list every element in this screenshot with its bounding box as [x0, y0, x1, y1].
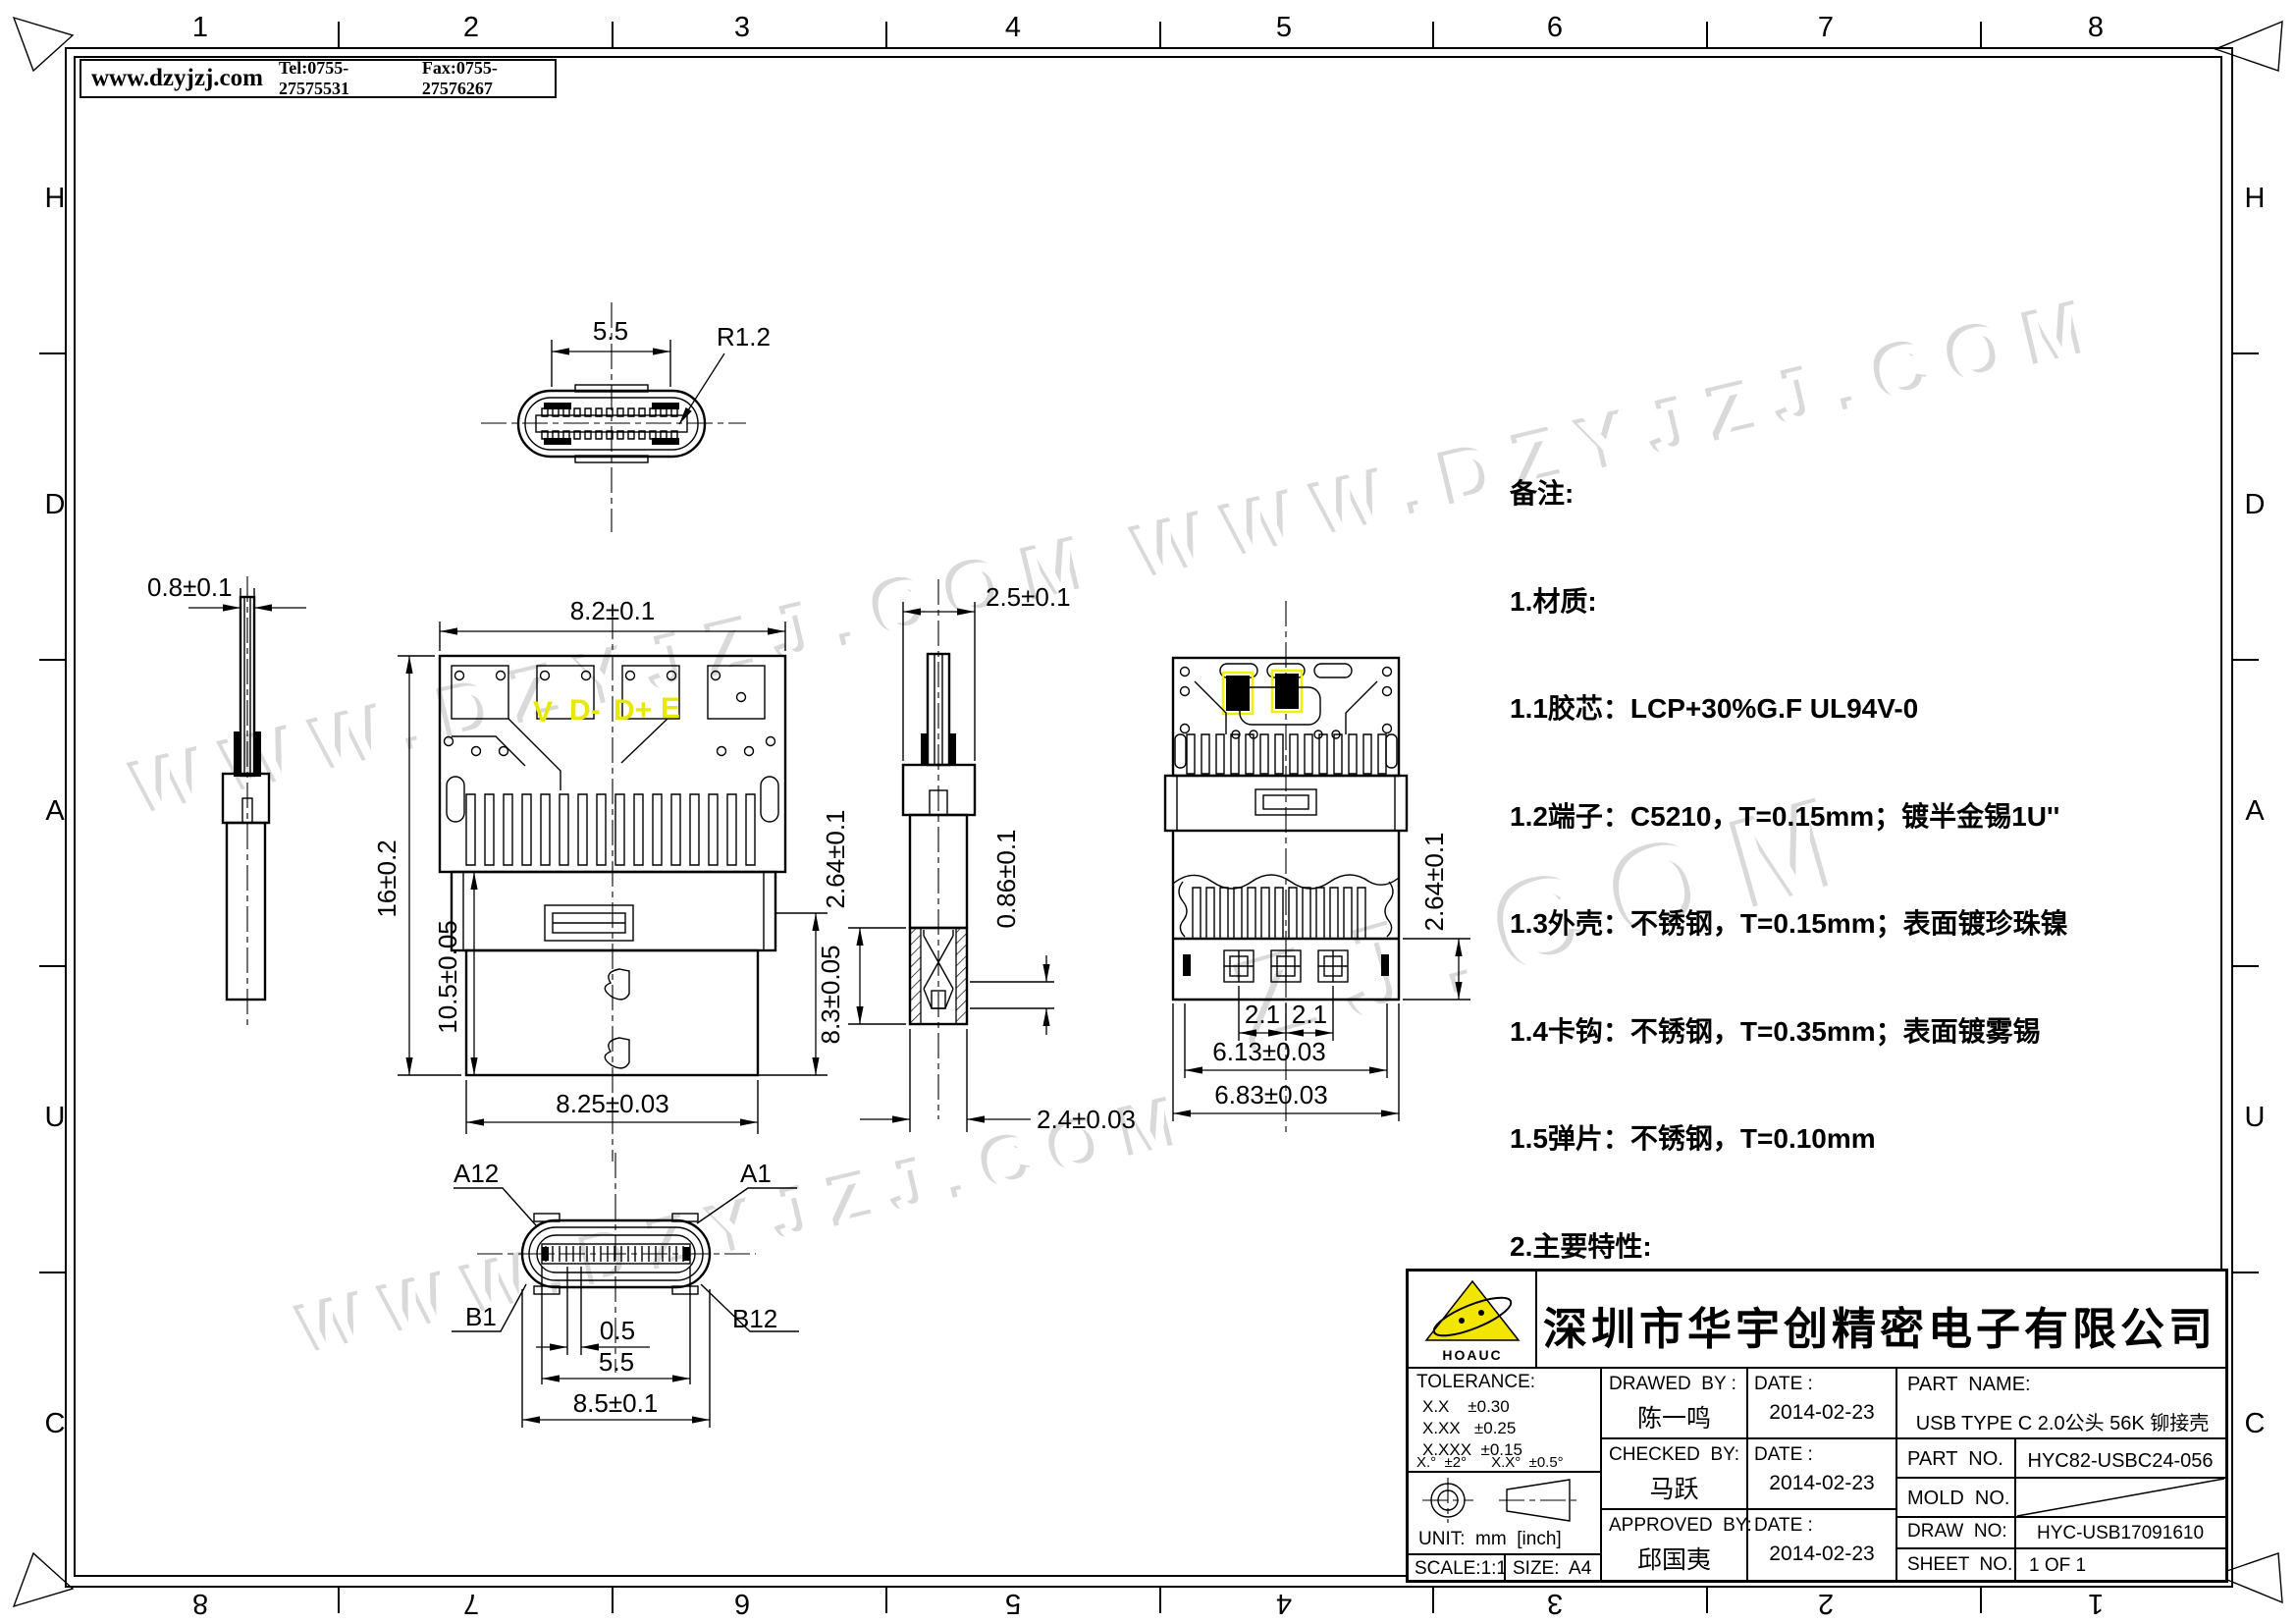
dim-shell-height: 10.5±0.05 — [433, 920, 462, 1033]
logo-text: HOAUC — [1442, 1347, 1502, 1363]
view-side-section: 2.5±0.1 2.64±0.1 0.86±0.1 2.4±0.03 — [813, 565, 1186, 1154]
dim-outer-width: 6.83±0.03 — [1214, 1080, 1327, 1110]
pad-label-dminus: D- — [569, 694, 601, 727]
dim-tongue-width: 5.5 — [599, 1347, 634, 1377]
pad-label-e: E — [661, 692, 680, 725]
mating-face-callouts: A12 A1 B1 B12 — [452, 1159, 799, 1333]
dim-inner-width: 6.13±0.03 — [1212, 1037, 1325, 1066]
scale-label: SCALE:1:1 — [1415, 1558, 1507, 1580]
website-box: www.dzyjzj.com Tel:0755-27575531 Fax:075… — [80, 59, 557, 98]
fax-number: Fax:0755-27576267 — [422, 58, 555, 99]
website-url: www.dzyjzj.com — [91, 65, 263, 92]
dim-pitch-right: 2.1 — [1292, 1000, 1327, 1029]
view-side-pin: 0.8±0.1 — [137, 565, 324, 1036]
dim-bottom-width: 2.4±0.03 — [1037, 1105, 1136, 1134]
title-block: HOAUC 深圳市华宇创精密电子有限公司 TOLERANCE: X.X ±0.3… — [1406, 1269, 2228, 1583]
view-rear: 2.64±0.1 2.1 2.1 6.13±0.03 6.83±0.03 — [1161, 587, 1574, 1142]
front-main-dimensions: 8.2±0.1 16±0.2 10.5±0.05 8.3±0.05 8.25±0… — [372, 596, 845, 1134]
pin-label-b1: B1 — [465, 1302, 497, 1331]
dim-radius: R1.2 — [717, 322, 771, 352]
drawn-date-label: DATE : — [1754, 1374, 1813, 1395]
side-section-dimensions: 2.5±0.1 2.64±0.1 0.86±0.1 2.4±0.03 — [821, 582, 1136, 1134]
approved-date: 2014-02-23 — [1747, 1543, 1896, 1566]
dim-right-height: 2.64±0.1 — [1419, 832, 1449, 931]
draw-no-value: HYC-USB17091610 — [2015, 1523, 2225, 1544]
dim-total-height: 16±0.2 — [372, 839, 401, 917]
size-label: SIZE: A4 — [1513, 1558, 1591, 1580]
projection-symbols — [1416, 1476, 1593, 1525]
pin-label-a12: A12 — [454, 1159, 499, 1188]
note-line: 1.4卡钩：不锈钢，T=0.35mm；表面镀雾锡 — [1510, 1014, 2068, 1051]
drawing-sheet: WWW.DZYJZJ.COM WWW.DZYJZJ.COM WWW.DZYJZJ… — [0, 0, 2296, 1624]
dim-left-height: 2.64±0.1 — [821, 809, 850, 908]
tolerance-row: X.X ±0.30 — [1422, 1397, 1510, 1417]
checked-date: 2014-02-23 — [1747, 1472, 1896, 1495]
note-line: 2.主要特性: — [1510, 1229, 2068, 1266]
checked-by-label: CHECKED BY: — [1609, 1444, 1739, 1466]
pad-label-dplus: D+ — [614, 694, 652, 727]
side-section-geometry — [903, 579, 975, 1119]
checked-by-name: 马跃 — [1601, 1470, 1747, 1505]
company-name: 深圳市华宇创精密电子有限公司 — [1536, 1293, 2223, 1357]
checked-date-label: DATE : — [1754, 1444, 1813, 1466]
note-line: 1.2端子：C5210，T=0.15mm；镀半金锡1U'' — [1510, 799, 2068, 836]
dim-pin-offset: 0.5 — [600, 1316, 635, 1345]
view-mating-face: A12 A1 B1 B12 0.5 5.5 8.5±0.1 — [440, 1137, 862, 1471]
front-main-pad-labels: V D- D+ E — [533, 692, 680, 729]
dim-top-width: 8.2±0.1 — [570, 596, 656, 625]
company-logo: HOAUC — [1420, 1275, 1524, 1366]
part-no-label: PART NO. — [1907, 1448, 2003, 1471]
view-front-profile: 5.5 R1.2 — [471, 285, 864, 550]
pad-label-v: V — [533, 696, 553, 729]
part-no-value: HYC82-USBC24-056 — [2015, 1450, 2225, 1473]
rear-dimensions: 2.64±0.1 2.1 2.1 6.13±0.03 6.83±0.03 — [1173, 832, 1470, 1121]
draw-no-label: DRAW NO: — [1907, 1521, 2007, 1543]
drawn-by-name: 陈一鸣 — [1601, 1399, 1747, 1435]
tolerance-row: X.XX ±0.25 — [1422, 1419, 1516, 1438]
phone-number: Tel:0755-27575531 — [279, 58, 406, 99]
dim-inner-height: 0.86±0.1 — [991, 829, 1021, 928]
side-pin-dimensions: 0.8±0.1 — [147, 572, 306, 616]
note-line: 备注: — [1510, 476, 2068, 513]
pin-label-b12: B12 — [732, 1304, 777, 1333]
dim-pitch-left: 2.1 — [1245, 1000, 1280, 1029]
note-line: 1.5弹片：不锈钢，T=0.10mm — [1510, 1121, 2068, 1158]
part-name-value: USB TYPE C 2.0公头 56K 铆接壳 — [1904, 1407, 2220, 1435]
part-name-label: PART NAME: — [1907, 1374, 2031, 1396]
approved-by-name: 邱国夷 — [1601, 1541, 1747, 1576]
side-pin-geometry — [223, 576, 269, 1026]
tolerance-angular: X.° ±2° X.X° ±0.5° — [1416, 1454, 1564, 1471]
pin-label-a1: A1 — [740, 1159, 772, 1188]
front-main-geometry — [440, 614, 785, 1162]
approved-date-label: DATE : — [1754, 1515, 1813, 1537]
sheet-no-label: SHEET NO. — [1907, 1554, 2012, 1576]
view-front-main: V D- D+ E 8.2±0.1 16±0.2 10.5±0.05 8.3±0… — [368, 584, 859, 1173]
note-line: 1.3外壳：不锈钢，T=0.15mm；表面镀珍珠镍 — [1510, 906, 2068, 943]
dim-bottom-width: 8.25±0.03 — [556, 1089, 668, 1118]
approved-by-label: APPROVED BY: — [1609, 1515, 1752, 1537]
dim-shell-width: 8.5±0.1 — [573, 1388, 659, 1418]
mold-no-label: MOLD NO. — [1907, 1488, 2009, 1510]
dim-width: 5.5 — [593, 316, 628, 346]
note-line: 1.材质: — [1510, 584, 2068, 621]
drawn-by-label: DRAWED BY : — [1609, 1374, 1736, 1395]
note-line: 1.1胶芯：LCP+30%G.F UL94V-0 — [1510, 691, 2068, 728]
sheet-no-value: 1 OF 1 — [2029, 1555, 2086, 1577]
unit-label: UNIT: mm [inch] — [1418, 1529, 1562, 1550]
tolerance-label: TOLERANCE: — [1416, 1372, 1535, 1393]
dim-pin-width: 0.8±0.1 — [147, 572, 233, 602]
drawn-date: 2014-02-23 — [1747, 1401, 1896, 1425]
dim-top-width: 2.5±0.1 — [986, 582, 1071, 612]
